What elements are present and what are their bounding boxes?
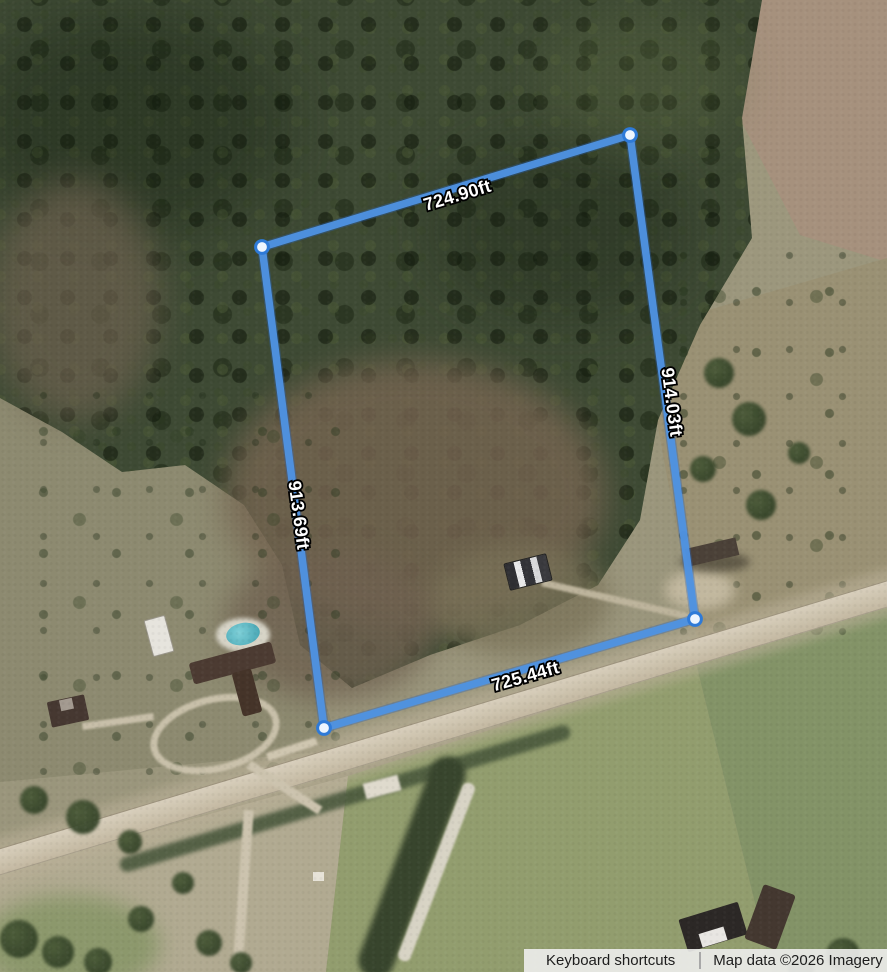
measure-vertex-top-right[interactable] — [624, 129, 637, 142]
measure-vertex-top-left[interactable] — [256, 241, 269, 254]
measure-label-left: 913.69ft — [284, 479, 313, 550]
attribution-bar: Keyboard shortcuts Map data ©2026 Imager… — [524, 949, 887, 972]
keyboard-shortcuts-button[interactable]: Keyboard shortcuts — [524, 952, 699, 969]
measure-vertex-bottom-left[interactable] — [318, 722, 331, 735]
measure-overlay: 724.90ft 914.03ft 913.69ft 725.44ft — [0, 0, 887, 972]
measure-label-bottom: 725.44ft — [489, 657, 561, 695]
measure-edges — [262, 135, 695, 728]
map-data-attribution: Map data ©2026 Imagery ©20 — [699, 952, 887, 969]
measure-vertex-bottom-right[interactable] — [689, 613, 702, 626]
map-viewport: 724.90ft 914.03ft 913.69ft 725.44ft Keyb… — [0, 0, 887, 972]
measure-vertices — [256, 129, 702, 735]
measure-labels: 724.90ft 914.03ft 913.69ft 725.44ft — [284, 176, 686, 696]
measure-label-top: 724.90ft — [421, 176, 493, 215]
